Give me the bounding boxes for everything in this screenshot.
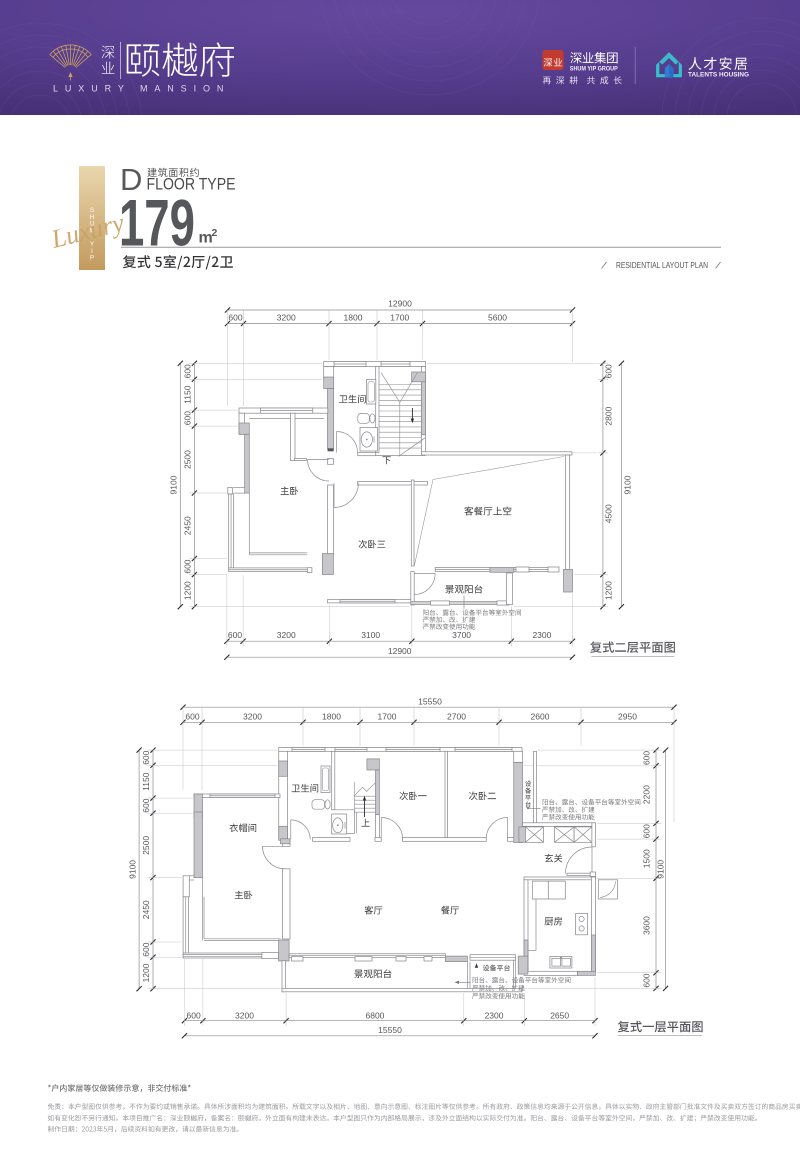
svg-text:600: 600 <box>183 559 193 573</box>
svg-text:3700: 3700 <box>452 630 471 640</box>
svg-text:TALENTS HOUSING: TALENTS HOUSING <box>688 71 749 78</box>
svg-text:2: 2 <box>212 227 218 239</box>
svg-text:3200: 3200 <box>277 630 296 640</box>
svg-text:2450: 2450 <box>141 900 151 919</box>
svg-text:RESIDENTIAL LAYOUT PLAN: RESIDENTIAL LAYOUT PLAN <box>616 261 708 270</box>
svg-text:1500: 1500 <box>642 849 652 868</box>
svg-text:3100: 3100 <box>361 630 380 640</box>
svg-text:2300: 2300 <box>485 1010 504 1020</box>
svg-text:12900: 12900 <box>388 646 412 656</box>
svg-text:12900: 12900 <box>388 299 412 309</box>
svg-text:1200: 1200 <box>604 581 614 600</box>
svg-text:4500: 4500 <box>604 504 614 523</box>
svg-text:3600: 3600 <box>642 916 652 935</box>
svg-text:1800: 1800 <box>322 711 341 721</box>
svg-text:600: 600 <box>642 824 652 838</box>
svg-text:2950: 2950 <box>618 711 637 721</box>
svg-text:5600: 5600 <box>488 312 507 322</box>
svg-text:2650: 2650 <box>550 1010 569 1020</box>
svg-text:2500: 2500 <box>183 450 193 469</box>
svg-text:3200: 3200 <box>277 312 296 322</box>
svg-text:S: S <box>90 208 94 214</box>
svg-text:2300: 2300 <box>532 630 551 640</box>
svg-text:600: 600 <box>642 751 652 765</box>
svg-text:15550: 15550 <box>418 697 442 707</box>
svg-text:1800: 1800 <box>344 312 363 322</box>
svg-text:600: 600 <box>228 630 242 640</box>
svg-text:1200: 1200 <box>141 963 151 982</box>
svg-text:600: 600 <box>187 1010 201 1020</box>
svg-text:2800: 2800 <box>604 406 614 425</box>
svg-text:2500: 2500 <box>141 836 151 855</box>
svg-text:6800: 6800 <box>365 1010 384 1020</box>
svg-text:1700: 1700 <box>378 711 397 721</box>
svg-text:1700: 1700 <box>390 312 409 322</box>
svg-text:600: 600 <box>141 798 151 812</box>
svg-text:600: 600 <box>183 364 193 378</box>
svg-text:179: 179 <box>119 187 195 260</box>
svg-text:600: 600 <box>141 750 151 764</box>
svg-text:600: 600 <box>604 364 614 378</box>
svg-text:9100: 9100 <box>622 475 632 494</box>
svg-text:2450: 2450 <box>183 516 193 535</box>
svg-text:600: 600 <box>141 942 151 956</box>
svg-text:1150: 1150 <box>183 385 193 404</box>
svg-text:LUXURY MANSION: LUXURY MANSION <box>53 84 230 94</box>
svg-text:P: P <box>90 256 94 262</box>
svg-text:600: 600 <box>228 312 242 322</box>
svg-text:3200: 3200 <box>235 1010 254 1020</box>
svg-text:1150: 1150 <box>141 772 151 791</box>
svg-text:600: 600 <box>185 711 199 721</box>
svg-text:9100: 9100 <box>169 475 179 494</box>
svg-text:1200: 1200 <box>183 581 193 600</box>
svg-text:3200: 3200 <box>243 711 262 721</box>
svg-text:15550: 15550 <box>378 1025 402 1035</box>
svg-text:9100: 9100 <box>655 860 665 879</box>
svg-text:2200: 2200 <box>642 785 652 804</box>
svg-text:600: 600 <box>642 973 652 987</box>
svg-text:9100: 9100 <box>127 860 137 879</box>
svg-text:2700: 2700 <box>447 711 466 721</box>
svg-text:600: 600 <box>183 411 193 425</box>
svg-text:2600: 2600 <box>531 711 550 721</box>
svg-text:SHUM YIP GROUP: SHUM YIP GROUP <box>570 66 619 73</box>
